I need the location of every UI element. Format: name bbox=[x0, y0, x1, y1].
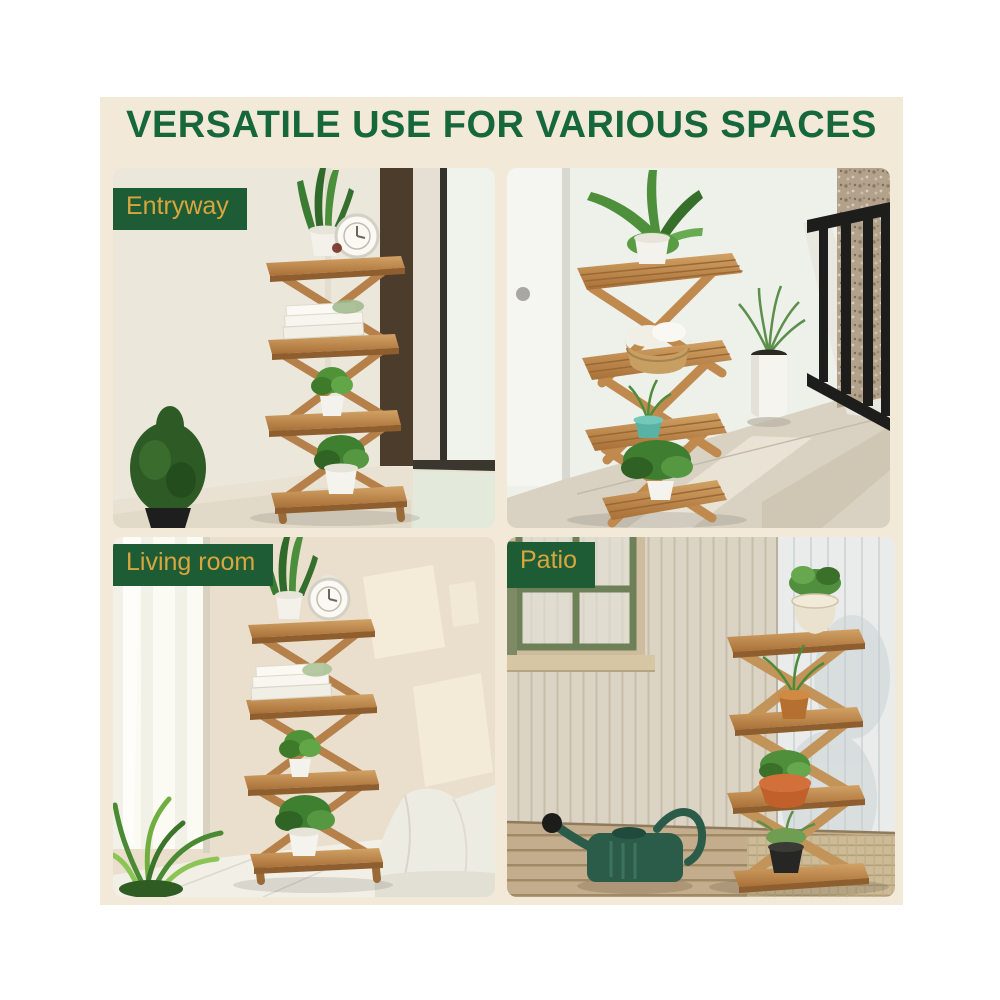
badge-patio-label: Patio bbox=[520, 546, 577, 574]
poster-title: VERSATILE USE FOR VARIOUS SPACES bbox=[100, 104, 903, 147]
balcony-scene bbox=[507, 168, 890, 528]
badge-living-room-label: Living room bbox=[126, 548, 255, 576]
photo-patio: Patio bbox=[507, 537, 895, 897]
living-room-scene bbox=[113, 537, 495, 897]
photo-entryway: Entryway bbox=[113, 168, 495, 528]
photo-living-room: Living room bbox=[113, 537, 495, 897]
badge-living-room: Living room bbox=[113, 544, 273, 586]
poster: VERSATILE USE FOR VARIOUS SPACES bbox=[0, 0, 1000, 1000]
patio-scene bbox=[507, 537, 895, 897]
stand-shadow bbox=[567, 512, 747, 528]
orange-bowl-plant bbox=[759, 750, 811, 808]
wine-glass bbox=[332, 243, 342, 253]
books bbox=[250, 662, 334, 700]
photo-balcony bbox=[507, 168, 890, 528]
badge-patio: Patio bbox=[507, 542, 595, 588]
badge-entryway: Entryway bbox=[113, 188, 247, 230]
door bbox=[507, 168, 570, 486]
badge-entryway-label: Entryway bbox=[126, 192, 229, 220]
